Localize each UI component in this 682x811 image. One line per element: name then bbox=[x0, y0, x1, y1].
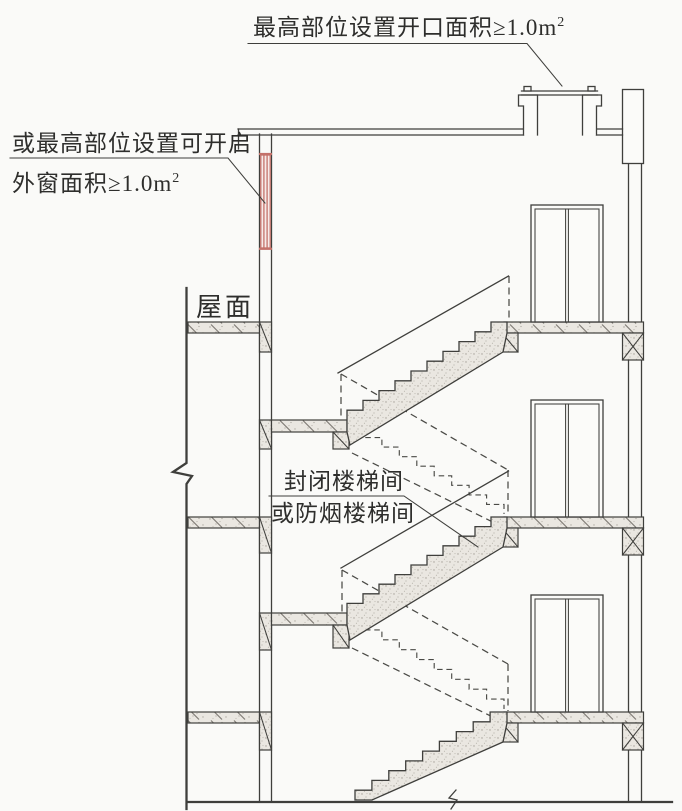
roof-label: 屋面 bbox=[196, 293, 254, 322]
roof-opening-annotation: 最高部位设置开口面积≥1.0m2 bbox=[253, 15, 565, 40]
stair-section-page: 最高部位设置开口面积≥1.0m2 或最高部位设置可开启 外窗面积≥1.0m2 屋… bbox=[0, 0, 682, 811]
left-floor-slab-1 bbox=[188, 712, 260, 723]
left-floor-slab-2 bbox=[188, 517, 260, 528]
door-level-3 bbox=[531, 205, 603, 322]
stairwell-annotation-line1: 封闭楼梯间 bbox=[284, 469, 404, 494]
left-roof-slab bbox=[188, 322, 260, 333]
openable-window-annotation-line1: 或最高部位设置可开启 bbox=[12, 131, 252, 156]
door-level-1 bbox=[531, 595, 603, 712]
stair-section-diagram: 最高部位设置开口面积≥1.0m2 或最高部位设置可开启 外窗面积≥1.0m2 屋… bbox=[0, 0, 682, 811]
door-level-2 bbox=[531, 400, 603, 517]
openable-window-annotation-line2: 外窗面积≥1.0m2 bbox=[12, 171, 180, 196]
openable-window bbox=[259, 154, 272, 249]
parapet bbox=[623, 90, 644, 164]
stairwell-annotation-line2: 或防烟楼梯间 bbox=[271, 501, 415, 526]
stair-doors bbox=[531, 205, 603, 712]
